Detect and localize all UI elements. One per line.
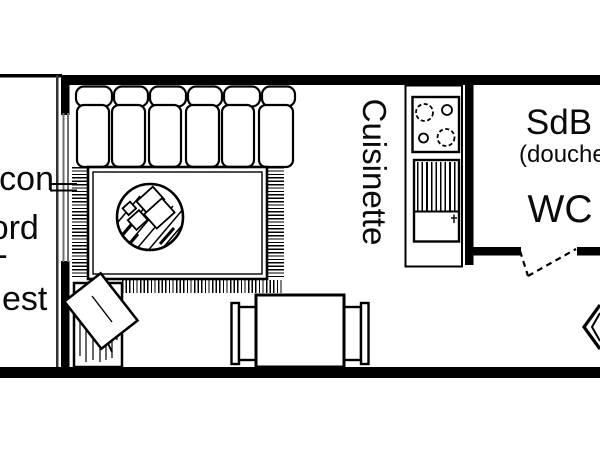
bath-wall-left-segment xyxy=(465,247,521,256)
bath-wall-right-segment xyxy=(577,247,600,256)
dining-table xyxy=(256,295,344,367)
dining-chair-left xyxy=(239,307,256,360)
top-wall xyxy=(61,75,600,85)
window-wall xyxy=(50,113,77,262)
balcony-edge-line xyxy=(0,74,62,78)
armchair xyxy=(64,273,137,367)
label-balcony-line4: Ouest xyxy=(0,280,47,319)
floor-plan-drawing xyxy=(0,0,600,450)
dining-chair-right xyxy=(361,303,369,364)
floor-plan: Balcon Nord - Ouest Cuisinette SdB (douc… xyxy=(0,0,600,450)
kitchenette xyxy=(406,86,463,267)
label-balcony-line3: - xyxy=(0,236,8,275)
sofa xyxy=(76,87,295,168)
label-toilet: WC xyxy=(528,188,593,232)
kitchen-unit xyxy=(414,160,459,242)
label-bathroom: SdB xyxy=(526,103,592,143)
left-wall-pier-bottom xyxy=(61,261,70,367)
dining-set xyxy=(232,295,369,367)
bottom-wall xyxy=(0,367,600,378)
label-balcony-line1: Balcon xyxy=(0,160,54,199)
balcony-rail-line xyxy=(56,75,59,367)
label-bathroom-detail: (douche) xyxy=(519,141,600,169)
entry-arrow xyxy=(584,305,600,349)
round-coffee-table xyxy=(96,184,195,262)
dining-chair-right xyxy=(344,307,361,360)
label-kitchenette: Cuisinette xyxy=(355,99,393,246)
bathroom-door-swing xyxy=(520,249,576,276)
kitchen-bath-wall xyxy=(465,85,474,265)
left-wall-pier-top xyxy=(61,75,70,115)
